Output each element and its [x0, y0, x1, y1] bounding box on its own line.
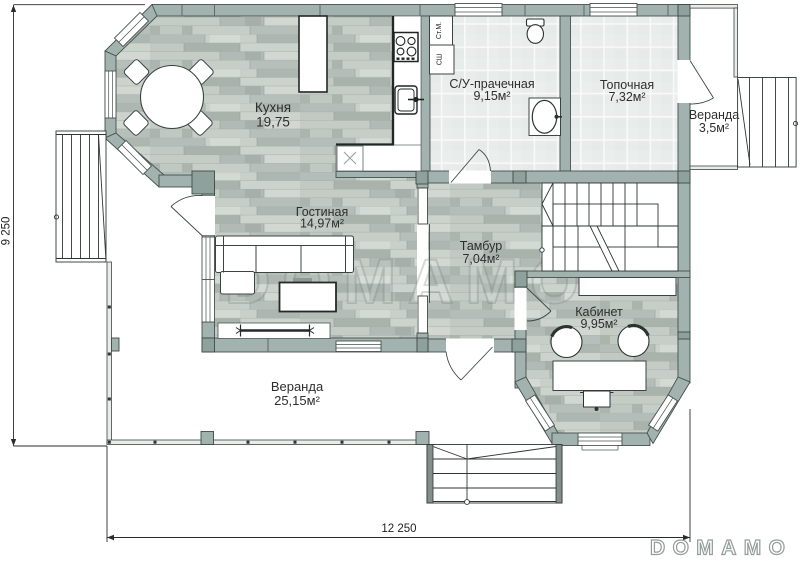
svg-text:3,5м²: 3,5м² [699, 121, 729, 135]
svg-text:9 250: 9 250 [1, 217, 13, 246]
svg-text:9,95м²: 9,95м² [580, 317, 617, 331]
svg-text:Веранда: Веранда [689, 108, 739, 122]
svg-text:14,97м²: 14,97м² [300, 217, 344, 231]
svg-text:Веранда: Веранда [271, 379, 324, 394]
svg-text:19,75: 19,75 [256, 115, 290, 130]
svg-text:7,32м²: 7,32м² [608, 90, 645, 104]
svg-text:Кухня: Кухня [255, 100, 291, 115]
svg-text:7,04м²: 7,04м² [462, 252, 499, 266]
svg-text:СШ: СШ [437, 54, 444, 65]
svg-text:12 250: 12 250 [381, 523, 416, 535]
svg-text:DOMAMO: DOMAMO [650, 537, 792, 560]
svg-text:25,15м²: 25,15м² [274, 393, 320, 408]
svg-text:Ст.М.: Ст.М. [436, 22, 443, 39]
svg-text:9,15м²: 9,15м² [473, 89, 510, 103]
svg-text:Тамбур: Тамбур [460, 239, 502, 253]
